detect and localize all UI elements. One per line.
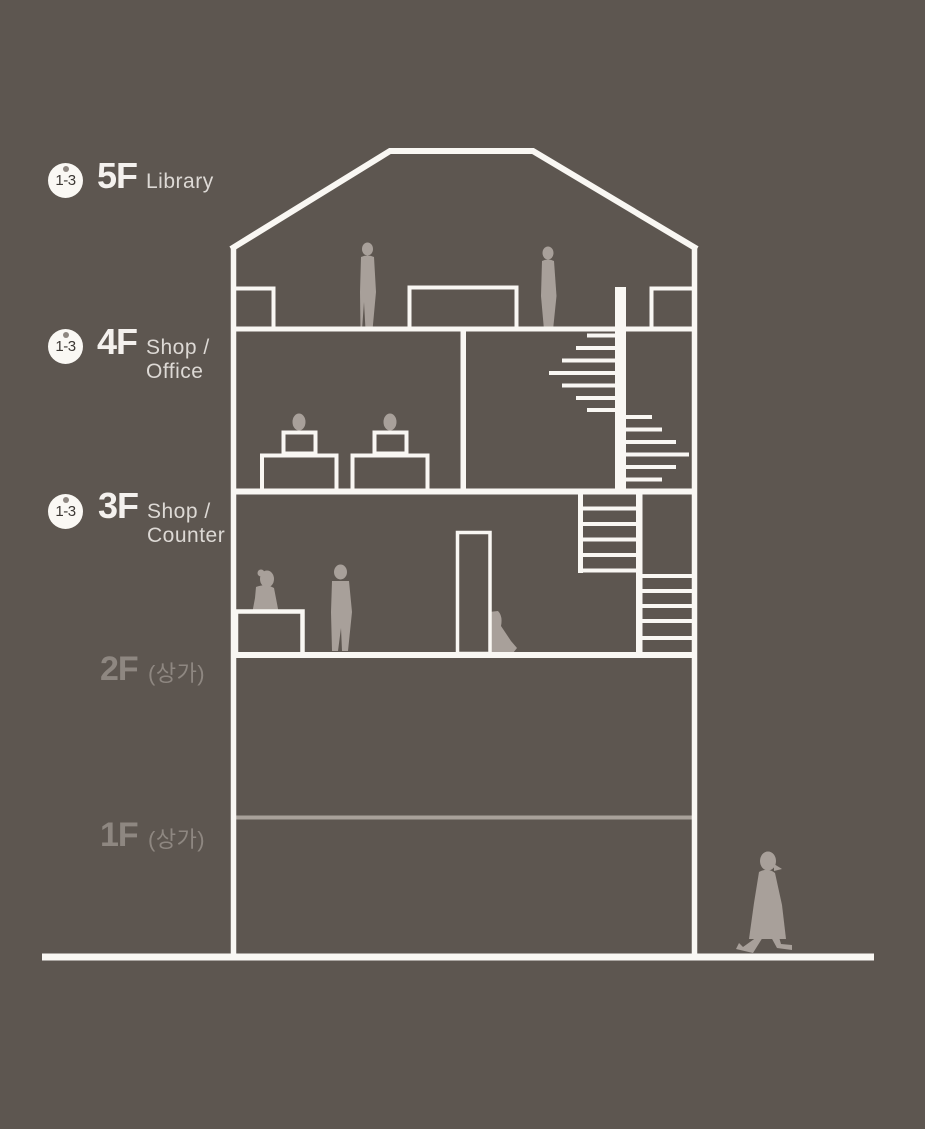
badge-label: 1-3 xyxy=(55,503,75,520)
badge-pin-dot-icon xyxy=(63,497,69,503)
shelf-center xyxy=(410,288,517,330)
stair-flight-lower xyxy=(643,576,695,638)
badge-pin-dot-icon xyxy=(63,166,69,172)
building-section-drawing xyxy=(0,0,925,1129)
monitor xyxy=(284,433,316,454)
floor-use: (상가) xyxy=(148,662,205,686)
desk xyxy=(262,456,337,492)
floor-use: Shop /Counter xyxy=(147,500,225,548)
badge-pin-dot-icon xyxy=(63,332,69,338)
standing-woman-icon xyxy=(360,243,376,331)
stair-mid-wall xyxy=(636,491,643,658)
stair-shaft-wall xyxy=(615,287,626,492)
stair-flight-upper xyxy=(578,492,636,573)
counter xyxy=(236,612,303,655)
floor-use: (상가) xyxy=(148,828,205,852)
floor-name: 2F xyxy=(100,652,138,686)
section-diagram-canvas: 1-3 5F Library 1-3 4F Shop /Office 1-3 3… xyxy=(0,0,925,1129)
stair-winders-upper xyxy=(549,336,615,411)
floor-range-badge: 1-3 xyxy=(48,329,83,364)
desk xyxy=(353,456,428,492)
figures-layer xyxy=(252,243,792,954)
floor-name: 4F xyxy=(97,324,137,360)
badge-label: 1-3 xyxy=(55,338,75,355)
standing-person-icon xyxy=(541,247,557,331)
roof xyxy=(231,151,697,249)
standing-man-icon xyxy=(331,565,352,652)
stair-winders-lower xyxy=(626,417,689,480)
sitting-woman-icon xyxy=(252,570,279,615)
floor-use: Library xyxy=(146,170,214,194)
floor-range-badge: 1-3 xyxy=(48,494,83,529)
walking-woman-icon xyxy=(736,852,792,954)
monitor xyxy=(375,433,407,454)
furniture-layer xyxy=(236,433,490,655)
person-sitting-by-door-icon xyxy=(489,611,517,653)
partition-wall xyxy=(461,331,467,491)
shelf-right xyxy=(652,289,693,330)
floor-name: 3F xyxy=(98,488,138,524)
floor-range-badge: 1-3 xyxy=(48,163,83,198)
badge-label: 1-3 xyxy=(55,172,75,189)
floor-use: Shop /Office xyxy=(146,336,210,384)
shelf-left xyxy=(236,289,274,330)
door xyxy=(458,533,491,654)
floor-name: 5F xyxy=(97,158,137,194)
floor-name: 1F xyxy=(100,818,138,852)
